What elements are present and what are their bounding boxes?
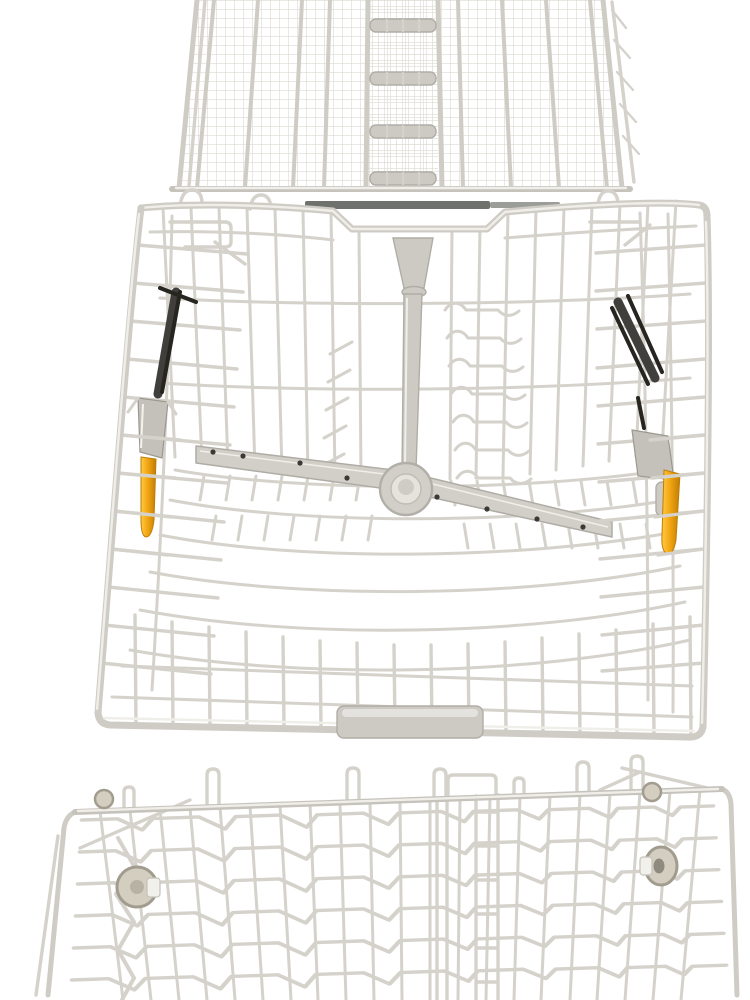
lower-rack-verticals (100, 790, 700, 1000)
orange-clip-right (662, 470, 680, 554)
spray-arm-hub (380, 463, 432, 515)
orange-clip-left (141, 457, 156, 537)
dishwasher-racks-photo (0, 0, 750, 1000)
cup-shelf-hooks (322, 303, 531, 483)
wheel-right-clip (640, 857, 652, 875)
wheel-top-right (643, 783, 661, 801)
lower-rack (36, 756, 737, 1000)
upper-rack-left-wall (101, 190, 271, 674)
spray-feed (393, 238, 433, 470)
rack-handle (337, 706, 483, 738)
wheel-left (117, 867, 160, 907)
upper-rack (97, 190, 708, 738)
wheel-top-left (95, 790, 113, 808)
wheel-right (640, 847, 677, 885)
cutlery-tray (172, 0, 639, 209)
water-funnel (393, 238, 433, 288)
wheel-left-clip (147, 878, 160, 897)
rack-handle-highlight (342, 709, 478, 717)
lower-rack-left-edge (48, 812, 75, 995)
product-photo (0, 0, 750, 1000)
